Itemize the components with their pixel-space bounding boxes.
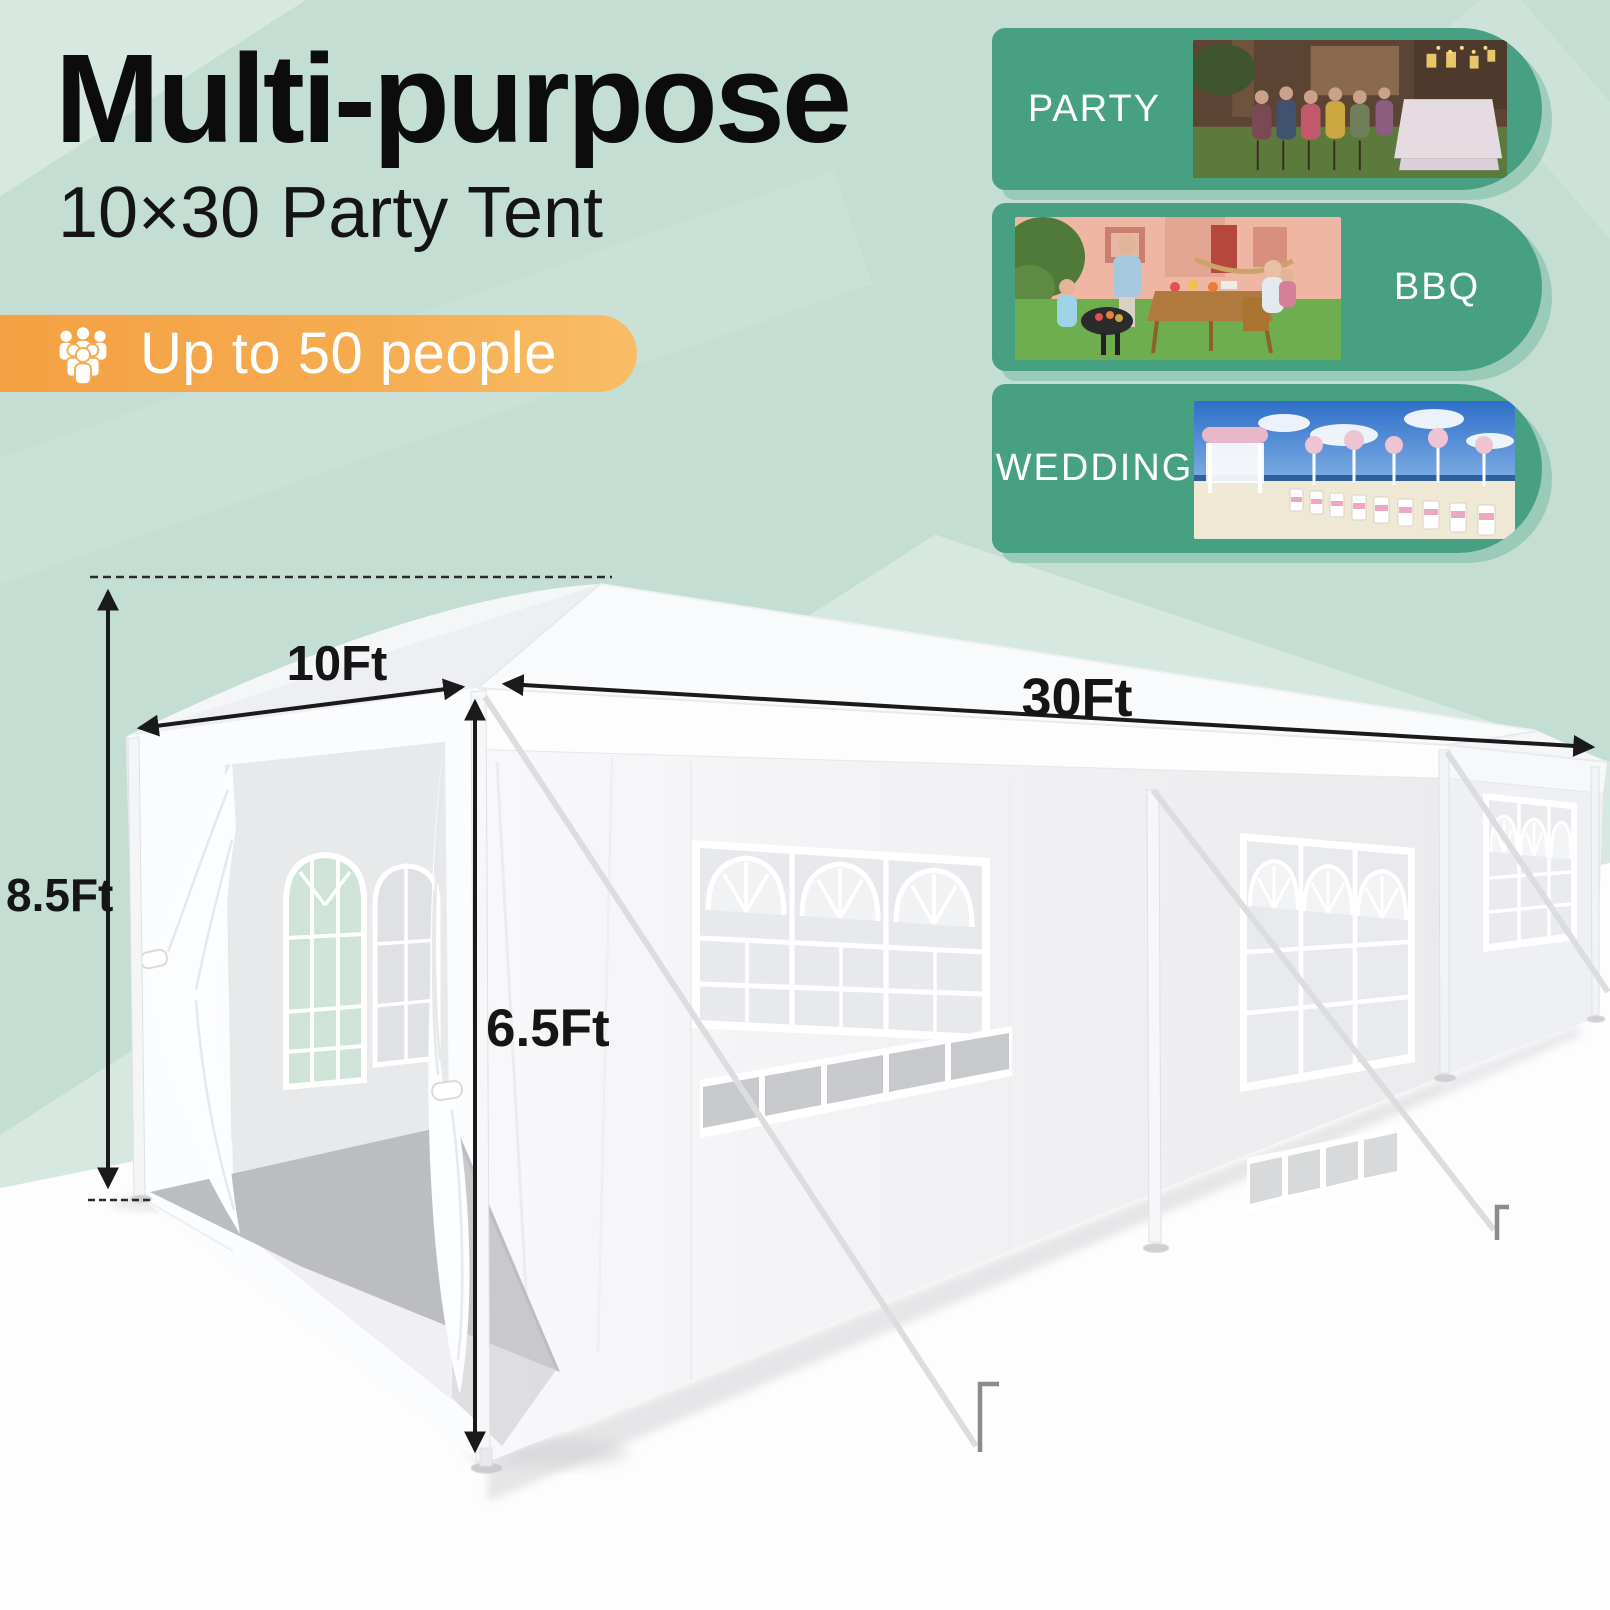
peak-height-label: 8.5Ft bbox=[6, 869, 113, 921]
use-case-card-wedding: WEDDING bbox=[992, 384, 1542, 553]
people-group-icon bbox=[52, 324, 114, 384]
interior-window-mint bbox=[286, 855, 364, 1087]
stake-icon bbox=[980, 1384, 999, 1452]
product-infographic: 10Ft 30Ft 8.5Ft 6.5Ft Multi-purpose 10×3… bbox=[0, 0, 1610, 1610]
side-window-group-2 bbox=[1240, 833, 1415, 1092]
capacity-badge-label: Up to 50 people bbox=[140, 320, 557, 387]
bbq-photo bbox=[1015, 217, 1341, 360]
use-case-label: WEDDING bbox=[992, 384, 1197, 553]
page-title: Multi-purpose bbox=[55, 30, 849, 169]
width-label: 10Ft bbox=[287, 637, 388, 691]
stake-icon bbox=[1497, 1207, 1509, 1240]
party-photo bbox=[1193, 40, 1507, 178]
interior-window-gray bbox=[375, 866, 438, 1065]
page-subtitle: 10×30 Party Tent bbox=[58, 172, 603, 254]
use-case-card-bbq: BBQ bbox=[992, 203, 1542, 371]
side-window-group-1 bbox=[692, 840, 990, 1042]
capacity-badge: Up to 50 people bbox=[0, 315, 637, 392]
use-case-label: BBQ bbox=[1337, 203, 1537, 371]
use-case-card-party: PARTY bbox=[992, 28, 1542, 190]
wedding-photo bbox=[1194, 401, 1515, 539]
use-case-label: PARTY bbox=[992, 28, 1197, 190]
side-height-label: 6.5Ft bbox=[486, 999, 610, 1058]
length-label: 30Ft bbox=[1021, 668, 1132, 728]
